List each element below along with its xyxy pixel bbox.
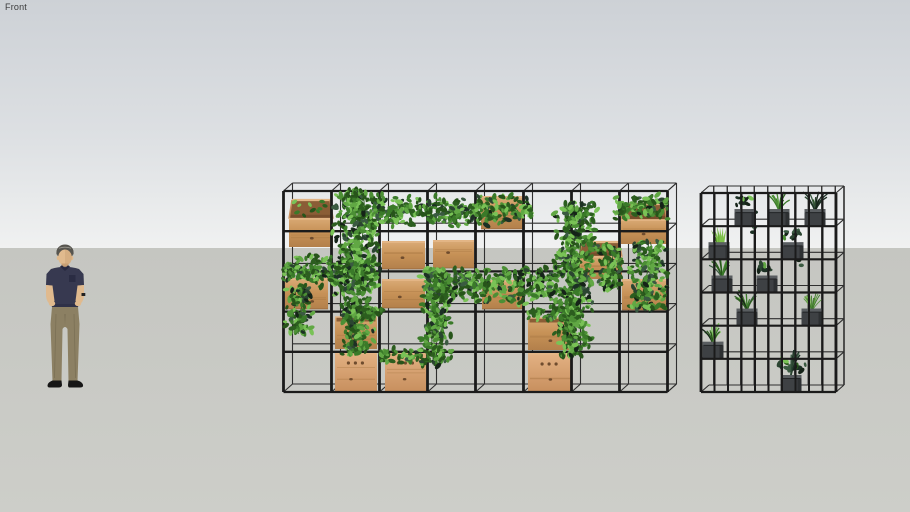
plant-pot[interactable] <box>802 293 823 325</box>
planter-box[interactable] <box>528 353 572 391</box>
plant-pot[interactable] <box>803 192 827 226</box>
planter-box[interactable] <box>382 241 425 269</box>
plant-pot[interactable] <box>709 226 730 259</box>
plant-pot[interactable] <box>776 350 807 392</box>
planter-box[interactable] <box>289 199 333 247</box>
scene-svg[interactable] <box>0 0 910 512</box>
planter-box[interactable] <box>433 240 474 268</box>
right-plant-rack[interactable] <box>701 186 844 392</box>
scene-label: Front <box>5 2 27 12</box>
plant-pot[interactable] <box>782 227 804 267</box>
person-figure[interactable] <box>46 245 85 388</box>
planter-box[interactable] <box>382 279 425 308</box>
planter-box[interactable] <box>335 352 377 391</box>
plant-pot[interactable] <box>756 260 778 293</box>
plant-pot[interactable] <box>767 192 789 226</box>
model-viewport[interactable]: Front <box>0 0 910 512</box>
plant-pot[interactable] <box>702 323 724 359</box>
left-shelving-unit[interactable] <box>280 183 676 392</box>
